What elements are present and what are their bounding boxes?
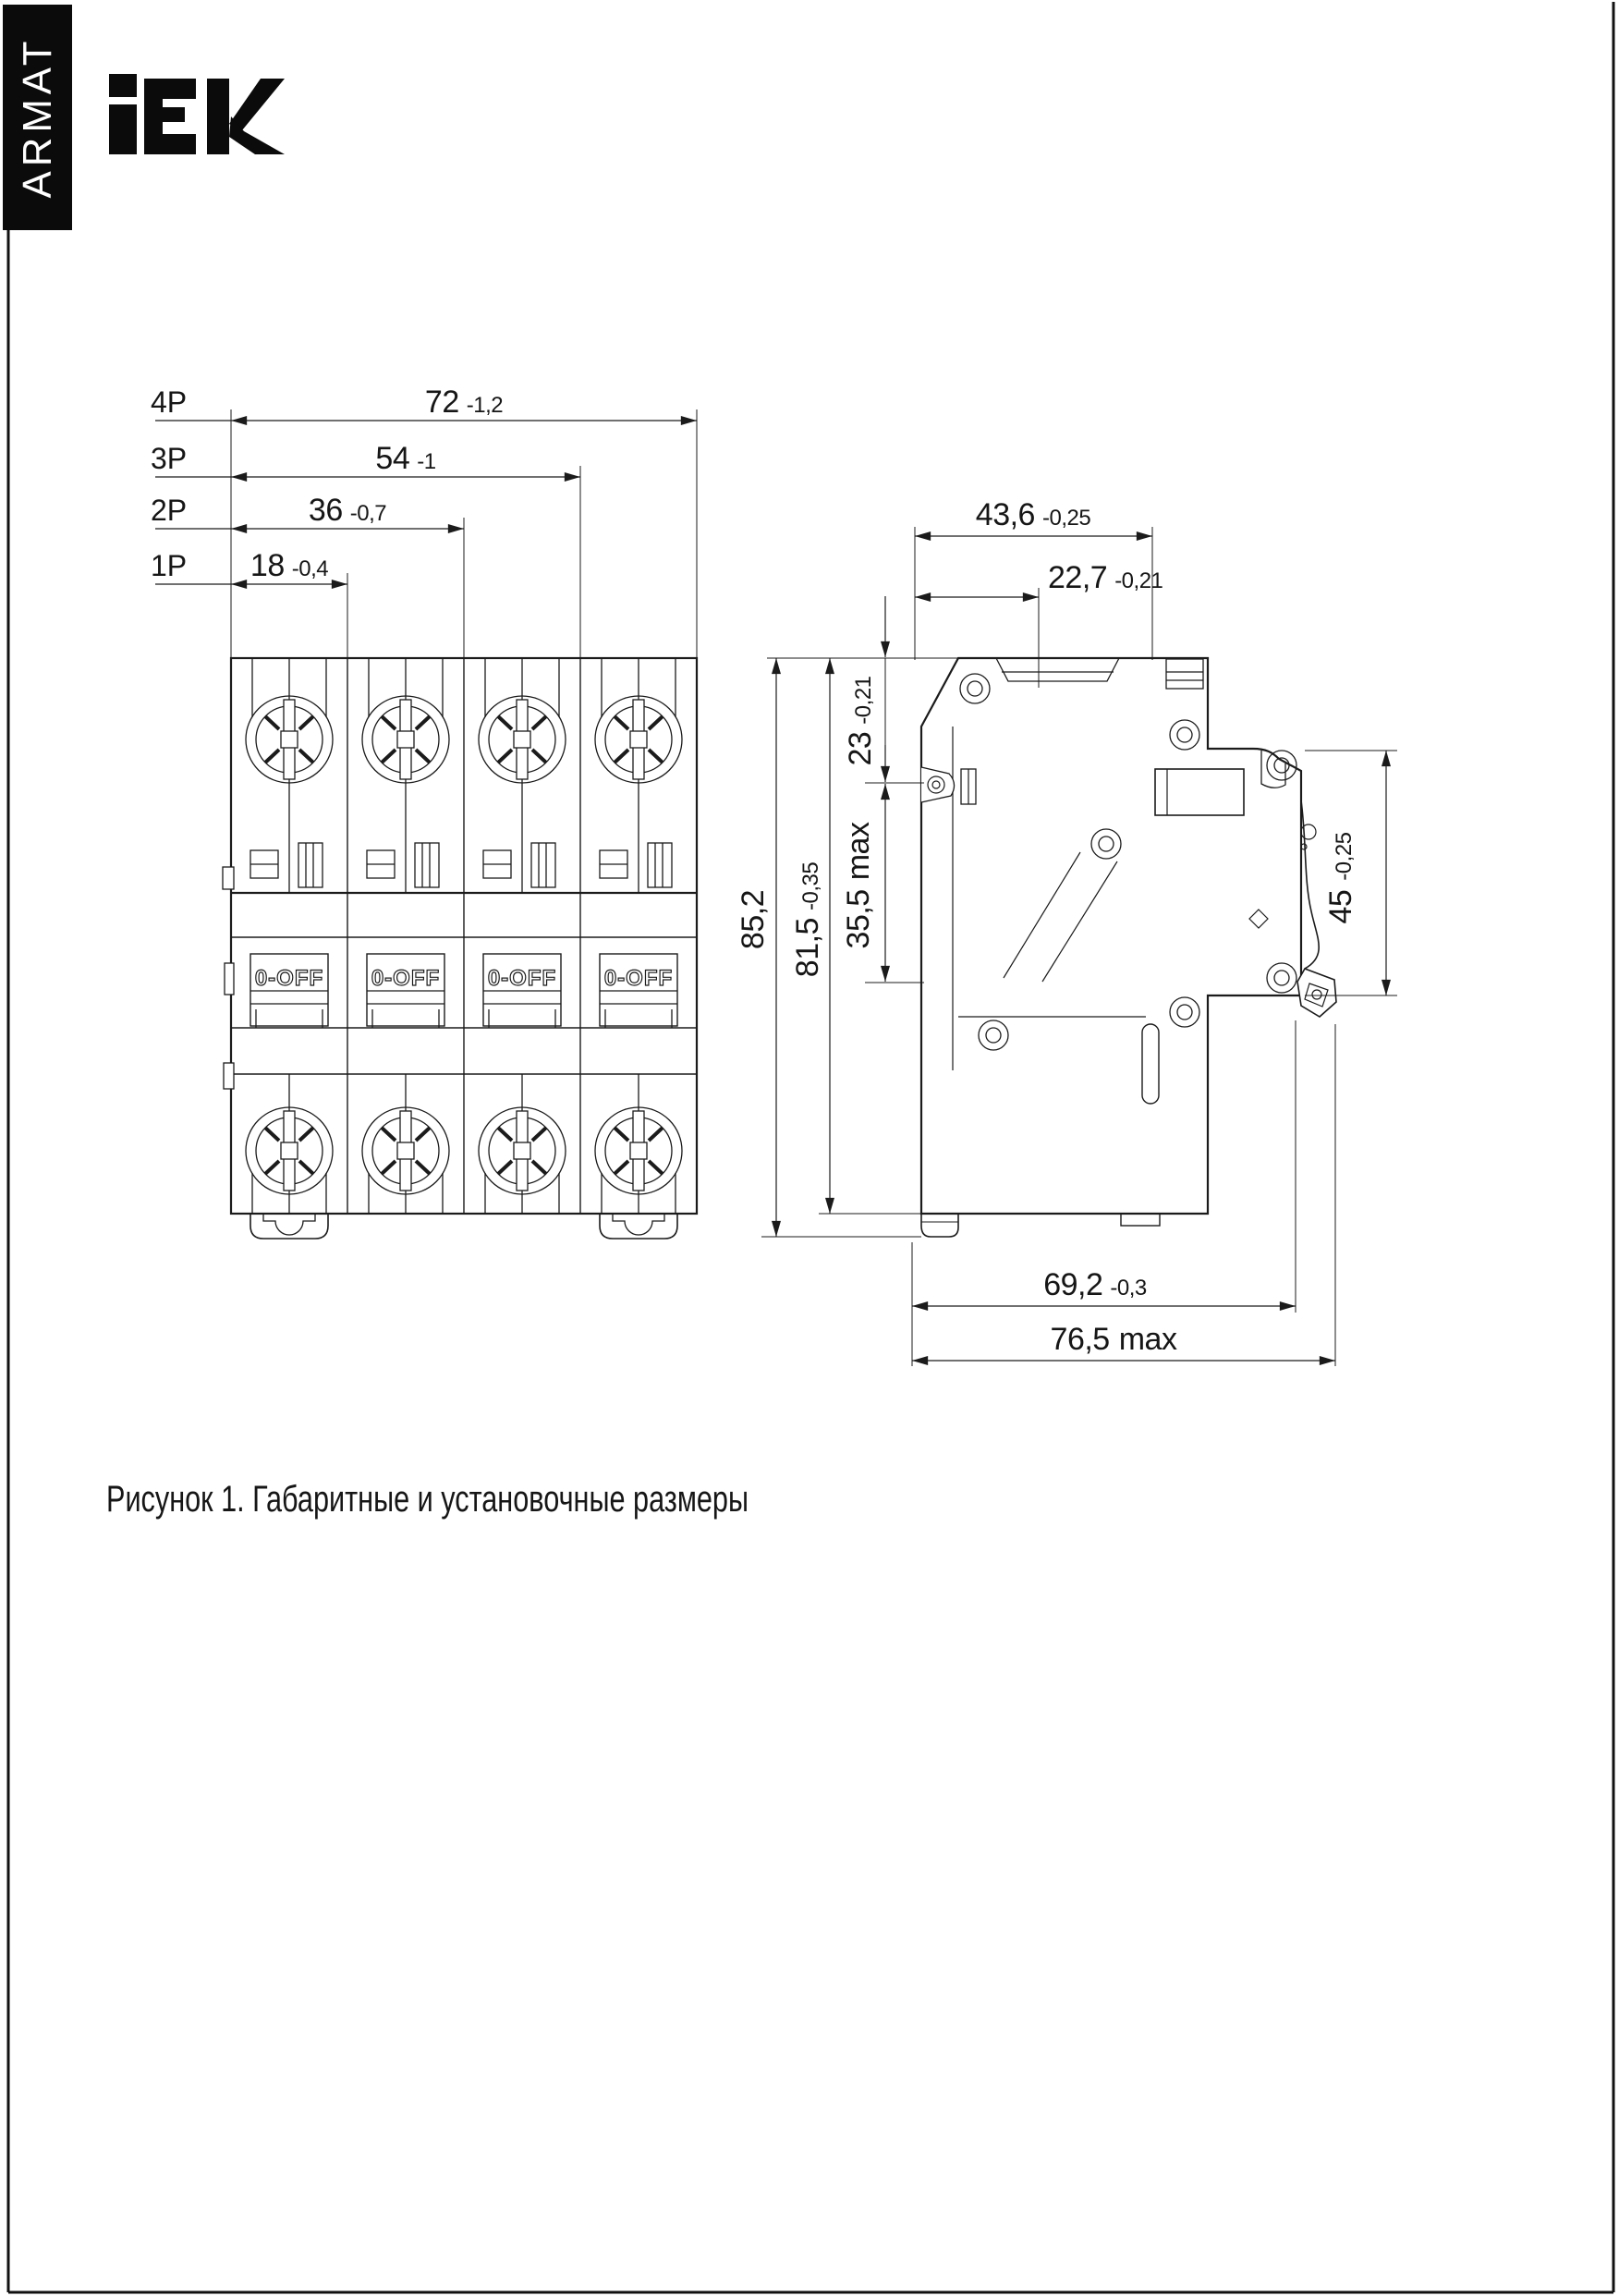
dim-43-6: 43,6-0,25 (976, 497, 1091, 532)
front-dimensions: 4P 72-1,2 3P 54-1 2P 36-0,7 1P 18-0,4 (151, 385, 697, 658)
pole-module (595, 658, 682, 1214)
dim-top-to-terminal: 23-0,21 (843, 596, 924, 783)
screw-boss (1091, 829, 1121, 859)
din-latch-pull (1297, 969, 1336, 1017)
dim-81-5: 81,5-0,35 (790, 862, 825, 978)
screw-boss (1170, 720, 1199, 750)
toggle-label: 0-OFF (371, 966, 440, 991)
dim-2p: 2P 36-0,7 (151, 493, 464, 529)
dim-69-2: 69,2-0,3 (1043, 1267, 1147, 1302)
dim-35-5: 35,5max (841, 822, 876, 948)
side-view: 43,6-0,25 22,7-0,21 23-0,21 35,5max (736, 497, 1397, 1366)
dim-4p: 4P 72-1,2 (151, 385, 697, 421)
side-dimensions: 43,6-0,25 22,7-0,21 23-0,21 35,5max (736, 497, 1397, 1366)
breaker-side-body (921, 658, 1336, 1237)
dim-depth-max: 76,5max (912, 1024, 1335, 1366)
pole-module (246, 658, 333, 1214)
dim-1p: 1P 18-0,4 (151, 548, 347, 584)
din-foot (600, 1214, 677, 1239)
front-view: 4P 72-1,2 3P 54-1 2P 36-0,7 1P 18-0,4 (151, 385, 697, 1239)
catalog-page: ARMAT 4P 72-1,2 3P 54-1 (0, 0, 1619, 2296)
pole-label-2p: 2P (151, 494, 187, 527)
dim-depth-mount: 69,2-0,3 (912, 1020, 1296, 1366)
figure-caption: Рисунок 1. Габаритные и установочные раз… (106, 1479, 749, 1520)
dim-4p-value: 72-1,2 (425, 385, 503, 420)
dim-din-recess: 45-0,25 (1305, 751, 1397, 995)
pole-label-3p: 3P (151, 442, 187, 475)
din-foot (250, 1214, 328, 1239)
dim-3p-value: 54-1 (375, 441, 435, 476)
pole-label-1p: 1P (151, 549, 187, 582)
page-border (8, 2, 1613, 2292)
screw-boss (960, 674, 990, 703)
dim-85-2: 85,2 (736, 890, 771, 949)
toggle-label: 0-OFF (488, 966, 556, 991)
pole-label-4p: 4P (151, 385, 187, 419)
toggle-label: 0-OFF (255, 966, 323, 991)
dim-2p-value: 36-0,7 (309, 493, 386, 528)
dim-height-total: 85,2 (736, 658, 776, 1237)
dim-22-7: 22,7-0,21 (1048, 560, 1163, 595)
series-label: ARMAT (15, 37, 60, 199)
pole-module (479, 658, 566, 1214)
screw-boss (979, 1020, 1008, 1050)
dim-3p: 3P 54-1 (151, 441, 580, 477)
dim-45: 45-0,25 (1323, 832, 1358, 923)
iek-logo-icon (109, 74, 285, 154)
dim-1p-value: 18-0,4 (250, 548, 328, 583)
screw-boss (1267, 963, 1296, 993)
toggle-label: 0-OFF (604, 966, 673, 991)
dim-terminal-zone: 35,5max (841, 784, 924, 983)
breaker-front-body: 0-OFF 0-OFF 0-OFF 0-OFF (223, 658, 697, 1239)
dim-76-5: 76,5max (1051, 1322, 1177, 1357)
dim-23: 23-0,21 (843, 676, 878, 765)
armat-sidebar: ARMAT (3, 5, 72, 230)
pole-module (362, 658, 449, 1214)
screw-boss (1170, 997, 1199, 1027)
